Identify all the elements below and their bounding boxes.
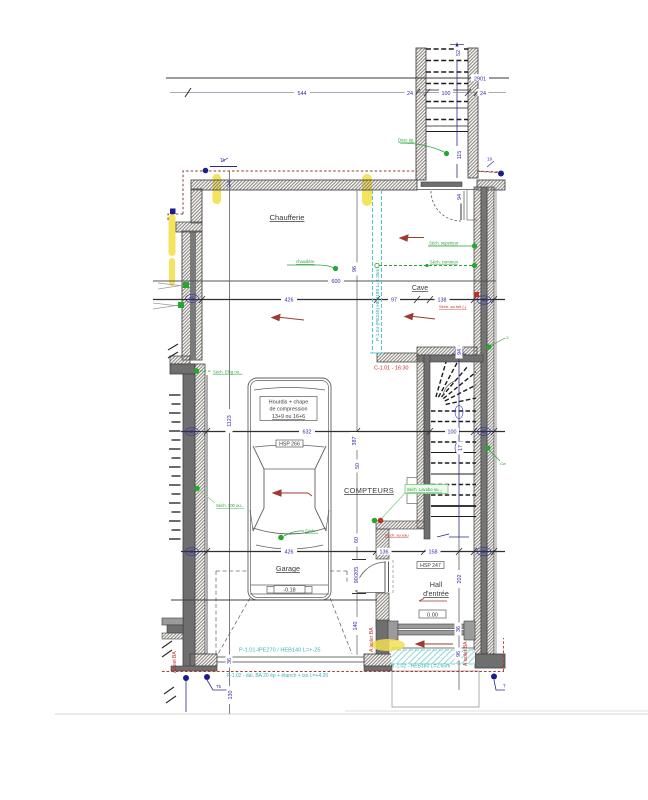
svg-text:Séch...: Séch... (305, 529, 318, 534)
svg-text:19: 19 (487, 157, 492, 162)
svg-text:158: 158 (429, 550, 438, 556)
svg-text:136: 136 (380, 550, 389, 556)
svg-text:387: 387 (352, 437, 358, 446)
svg-text:45: 45 (189, 430, 195, 436)
svg-text:0.00: 0.00 (427, 612, 438, 618)
svg-text:Assiet BA: Assiet BA (172, 651, 178, 673)
svg-text:36: 36 (456, 626, 462, 632)
svg-text:90/205: 90/205 (354, 567, 360, 584)
svg-text:chaudière: chaudière (296, 259, 315, 264)
svg-text:Séch. superieur: Séch. superieur (429, 241, 459, 246)
svg-text:A isoler BA: A isoler BA (463, 641, 469, 666)
svg-text:Séch. Lavabo ou...: Séch. Lavabo ou... (407, 487, 442, 492)
svg-text:45: 45 (481, 430, 487, 436)
svg-text:50: 50 (355, 463, 361, 469)
svg-text:T: T (503, 684, 506, 689)
svg-text:2901: 2901 (474, 77, 486, 83)
svg-text:d'entrée: d'entrée (423, 589, 449, 598)
svg-text:94: 94 (457, 194, 463, 200)
svg-text:46: 46 (481, 298, 487, 304)
svg-text:45: 45 (189, 297, 195, 303)
svg-text:Garage: Garage (276, 564, 300, 573)
svg-text:Tb: Tb (216, 684, 222, 689)
svg-text:Tb: Tb (220, 158, 226, 163)
svg-text:Séch. Elèg ou...: Séch. Elèg ou... (213, 370, 243, 375)
svg-text:Séch. au eau: Séch. au eau (385, 533, 409, 538)
svg-text:Hall: Hall (430, 580, 443, 589)
svg-text:13+9 ou 16+6: 13+9 ou 16+6 (272, 414, 305, 420)
svg-text:140: 140 (353, 622, 359, 631)
svg-text:P-1.01-IPE270 / HEB140 L=+-25: P-1.01-IPE270 / HEB140 L=+-25 (239, 648, 320, 654)
svg-text:24: 24 (480, 91, 486, 97)
svg-text:Séch. commun: Séch. commun (430, 260, 459, 265)
svg-text:130: 130 (228, 691, 234, 700)
svg-text:46: 46 (481, 550, 487, 556)
svg-text:de compression: de compression (269, 407, 307, 413)
svg-text:T-1.02 - HEB180 L=2.65m: T-1.02 - HEB180 L=2.65m (392, 664, 450, 670)
svg-text:Desc ép.: Desc ép. (398, 138, 415, 143)
svg-text:Chaufferie: Chaufferie (270, 213, 305, 222)
svg-text:1123: 1123 (227, 415, 233, 427)
svg-text:426: 426 (285, 550, 294, 556)
svg-text:Cave: Cave (412, 285, 428, 292)
svg-text:F-1.02 - dal. BA 20 ép + étanc: F-1.02 - dal. BA 20 ép + étanch + iso L=… (227, 673, 328, 679)
svg-text:96: 96 (352, 266, 358, 272)
svg-text:A isoler BA: A isoler BA (369, 627, 375, 652)
svg-text:Hourdis + chape: Hourdis + chape (269, 400, 308, 406)
svg-text:60: 60 (354, 537, 360, 543)
svg-text:C-1.01 - 16:30: C-1.01 - 16:30 (374, 366, 408, 372)
svg-text:100: 100 (448, 430, 457, 436)
svg-text:600: 600 (332, 279, 341, 285)
svg-text:544: 544 (298, 91, 307, 97)
svg-text:24: 24 (407, 91, 413, 97)
svg-text:24: 24 (227, 181, 233, 187)
svg-text:100: 100 (442, 91, 451, 97)
svg-text:36: 36 (227, 658, 233, 664)
svg-text:-0.18: -0.18 (283, 588, 295, 594)
svg-text:17: 17 (458, 445, 464, 451)
svg-text:Séch. 300 ou...: Séch. 300 ou... (216, 503, 244, 508)
svg-text:HSP 247: HSP 247 (420, 563, 441, 569)
svg-text:52: 52 (456, 50, 462, 56)
svg-text:115: 115 (457, 151, 463, 160)
svg-text:HSP 266: HSP 266 (279, 442, 300, 448)
svg-text:45: 45 (189, 550, 195, 556)
svg-text:202: 202 (457, 575, 463, 584)
svg-text:426: 426 (285, 298, 294, 304)
svg-text:94: 94 (457, 349, 463, 355)
svg-text:138: 138 (438, 298, 447, 304)
svg-text:96: 96 (456, 651, 462, 657)
svg-text:P-1.04 (PE240) HEB180 L=4.35m: P-1.04 (PE240) HEB180 L=4.35m (375, 269, 381, 341)
svg-text:COMPTEURS: COMPTEURS (344, 486, 394, 495)
svg-text:632: 632 (303, 430, 312, 436)
svg-text:Séch. au toit (-): Séch. au toit (-) (439, 304, 467, 309)
svg-text:97: 97 (391, 298, 397, 304)
svg-text:Cw: Cw (500, 461, 506, 466)
